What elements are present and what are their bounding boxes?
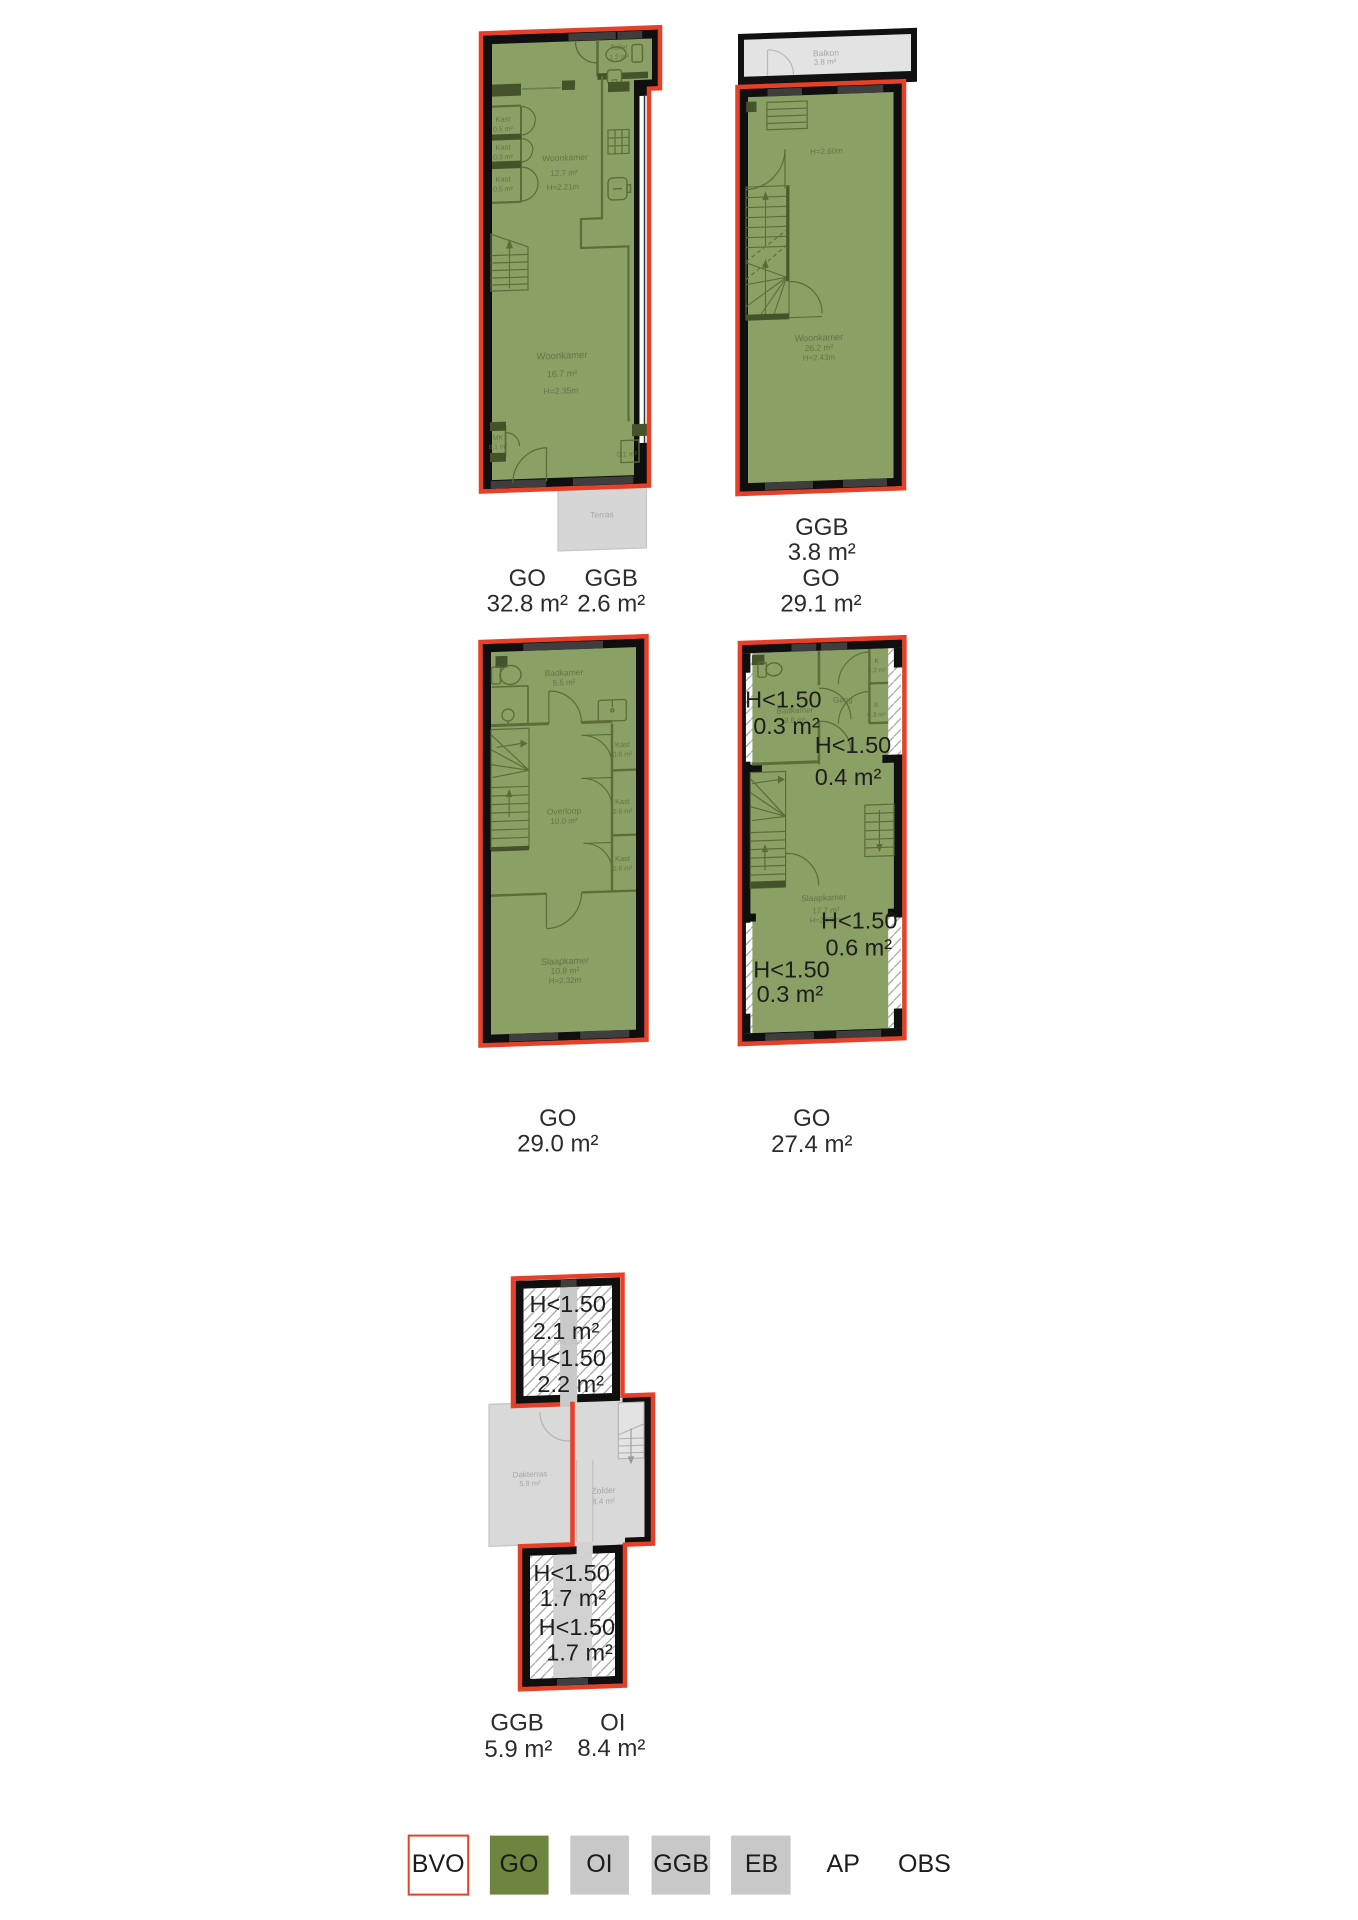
svg-text:H<1.50: H<1.50 <box>815 732 891 758</box>
svg-text:2.6 m²: 2.6 m² <box>577 591 645 618</box>
svg-text:10.0 m²: 10.0 m² <box>550 816 577 826</box>
svg-text:AP: AP <box>827 1850 860 1878</box>
svg-text:0.3 m²: 0.3 m² <box>757 981 824 1007</box>
svg-text:Woonkamer: Woonkamer <box>536 350 587 363</box>
svg-text:Kast: Kast <box>495 114 511 124</box>
svg-text:Kast: Kast <box>495 174 511 184</box>
svg-text:29.0 m²: 29.0 m² <box>517 1131 598 1158</box>
svg-text:0.1 m²: 0.1 m² <box>489 444 508 452</box>
svg-text:H<1.50: H<1.50 <box>821 908 897 934</box>
svg-text:Woonkamer: Woonkamer <box>542 152 588 164</box>
svg-text:H=2.35m: H=2.35m <box>544 385 579 396</box>
svg-text:K: K <box>875 658 880 665</box>
svg-text:0.3 m²: 0.3 m² <box>867 711 886 719</box>
svg-text:0.4 m²: 0.4 m² <box>815 764 882 790</box>
svg-text:H<1.50: H<1.50 <box>745 687 821 713</box>
svg-text:0.6 m²: 0.6 m² <box>613 808 634 816</box>
svg-text:0.6 m²: 0.6 m² <box>613 865 634 873</box>
svg-text:0.5 m²: 0.5 m² <box>493 186 514 194</box>
svg-text:Zolder: Zolder <box>591 1485 615 1496</box>
svg-text:H<1.50: H<1.50 <box>529 1345 605 1371</box>
svg-text:GO: GO <box>539 1105 576 1132</box>
svg-text:H<1.50: H<1.50 <box>753 957 829 983</box>
svg-text:29.1 m²: 29.1 m² <box>780 591 861 618</box>
svg-text:27.4 m²: 27.4 m² <box>771 1131 852 1158</box>
svg-text:0.3 m²: 0.3 m² <box>753 713 820 739</box>
svg-text:1.2 m²: 1.2 m² <box>609 54 630 62</box>
svg-text:5.5 m²: 5.5 m² <box>553 678 576 688</box>
svg-text:GO: GO <box>802 565 839 592</box>
svg-text:H<1.50: H<1.50 <box>539 1614 615 1640</box>
svg-text:GGB: GGB <box>585 565 638 592</box>
svg-text:GO: GO <box>509 565 546 592</box>
svg-text:10.8 m²: 10.8 m² <box>551 965 580 976</box>
svg-text:K: K <box>874 702 879 709</box>
svg-text:OBS: OBS <box>898 1850 951 1878</box>
svg-text:0.3 m²: 0.3 m² <box>868 667 887 675</box>
svg-text:5.9 m²: 5.9 m² <box>519 1479 541 1489</box>
svg-text:8.4 m²: 8.4 m² <box>592 1496 615 1506</box>
svg-text:Kast: Kast <box>495 142 511 152</box>
svg-text:Badkamer: Badkamer <box>545 667 584 678</box>
svg-text:Terras: Terras <box>590 509 614 520</box>
svg-text:H≈2.32m: H≈2.32m <box>549 975 582 985</box>
svg-text:1.7 m²: 1.7 m² <box>540 1585 607 1611</box>
svg-text:OI: OI <box>586 1850 612 1878</box>
svg-text:8.4 m²: 8.4 m² <box>577 1735 645 1762</box>
svg-text:32.8 m²: 32.8 m² <box>487 591 568 618</box>
svg-text:2.2 m²: 2.2 m² <box>537 1371 604 1397</box>
svg-text:EB: EB <box>745 1850 778 1878</box>
svg-text:Kast: Kast <box>615 854 631 864</box>
svg-text:0.6 m²: 0.6 m² <box>825 935 892 961</box>
svg-text:H<1.50: H<1.50 <box>533 1560 609 1586</box>
svg-text:MK: MK <box>493 435 504 442</box>
svg-text:Kast: Kast <box>615 740 631 750</box>
svg-text:16.7 m²: 16.7 m² <box>547 368 578 379</box>
svg-text:0.1 m²: 0.1 m² <box>617 451 638 459</box>
svg-text:0.6 m²: 0.6 m² <box>613 751 634 759</box>
svg-text:Toilet: Toilet <box>610 42 628 52</box>
svg-text:GO: GO <box>500 1850 539 1878</box>
svg-text:5.9 m²: 5.9 m² <box>484 1736 552 1763</box>
svg-text:GO: GO <box>793 1105 830 1132</box>
svg-text:3.8 m²: 3.8 m² <box>788 539 856 566</box>
svg-text:0.5 m²: 0.5 m² <box>493 126 514 134</box>
svg-text:2.1 m²: 2.1 m² <box>533 1318 600 1344</box>
svg-text:Gang: Gang <box>833 695 853 705</box>
svg-text:0.3 m²: 0.3 m² <box>493 154 514 162</box>
svg-text:GGB: GGB <box>795 514 848 541</box>
svg-text:OI: OI <box>600 1710 625 1737</box>
svg-text:Kast: Kast <box>615 797 631 807</box>
svg-text:H=2.60m: H=2.60m <box>810 146 843 156</box>
svg-text:H≈2.21m: H≈2.21m <box>547 182 580 192</box>
svg-text:Slaapkamer: Slaapkamer <box>801 892 847 904</box>
svg-text:BVO: BVO <box>412 1850 465 1878</box>
svg-text:GGB: GGB <box>653 1850 709 1878</box>
svg-text:H≈2.43m: H≈2.43m <box>803 353 836 363</box>
svg-text:3.8 m²: 3.8 m² <box>814 57 837 67</box>
svg-text:12.7 m²: 12.7 m² <box>550 168 577 178</box>
svg-text:26.2 m²: 26.2 m² <box>805 342 834 353</box>
svg-text:Overloop: Overloop <box>547 805 582 816</box>
svg-text:1.7 m²: 1.7 m² <box>546 1640 613 1666</box>
svg-text:GGB: GGB <box>490 1710 543 1737</box>
svg-text:H<1.50: H<1.50 <box>529 1291 605 1317</box>
